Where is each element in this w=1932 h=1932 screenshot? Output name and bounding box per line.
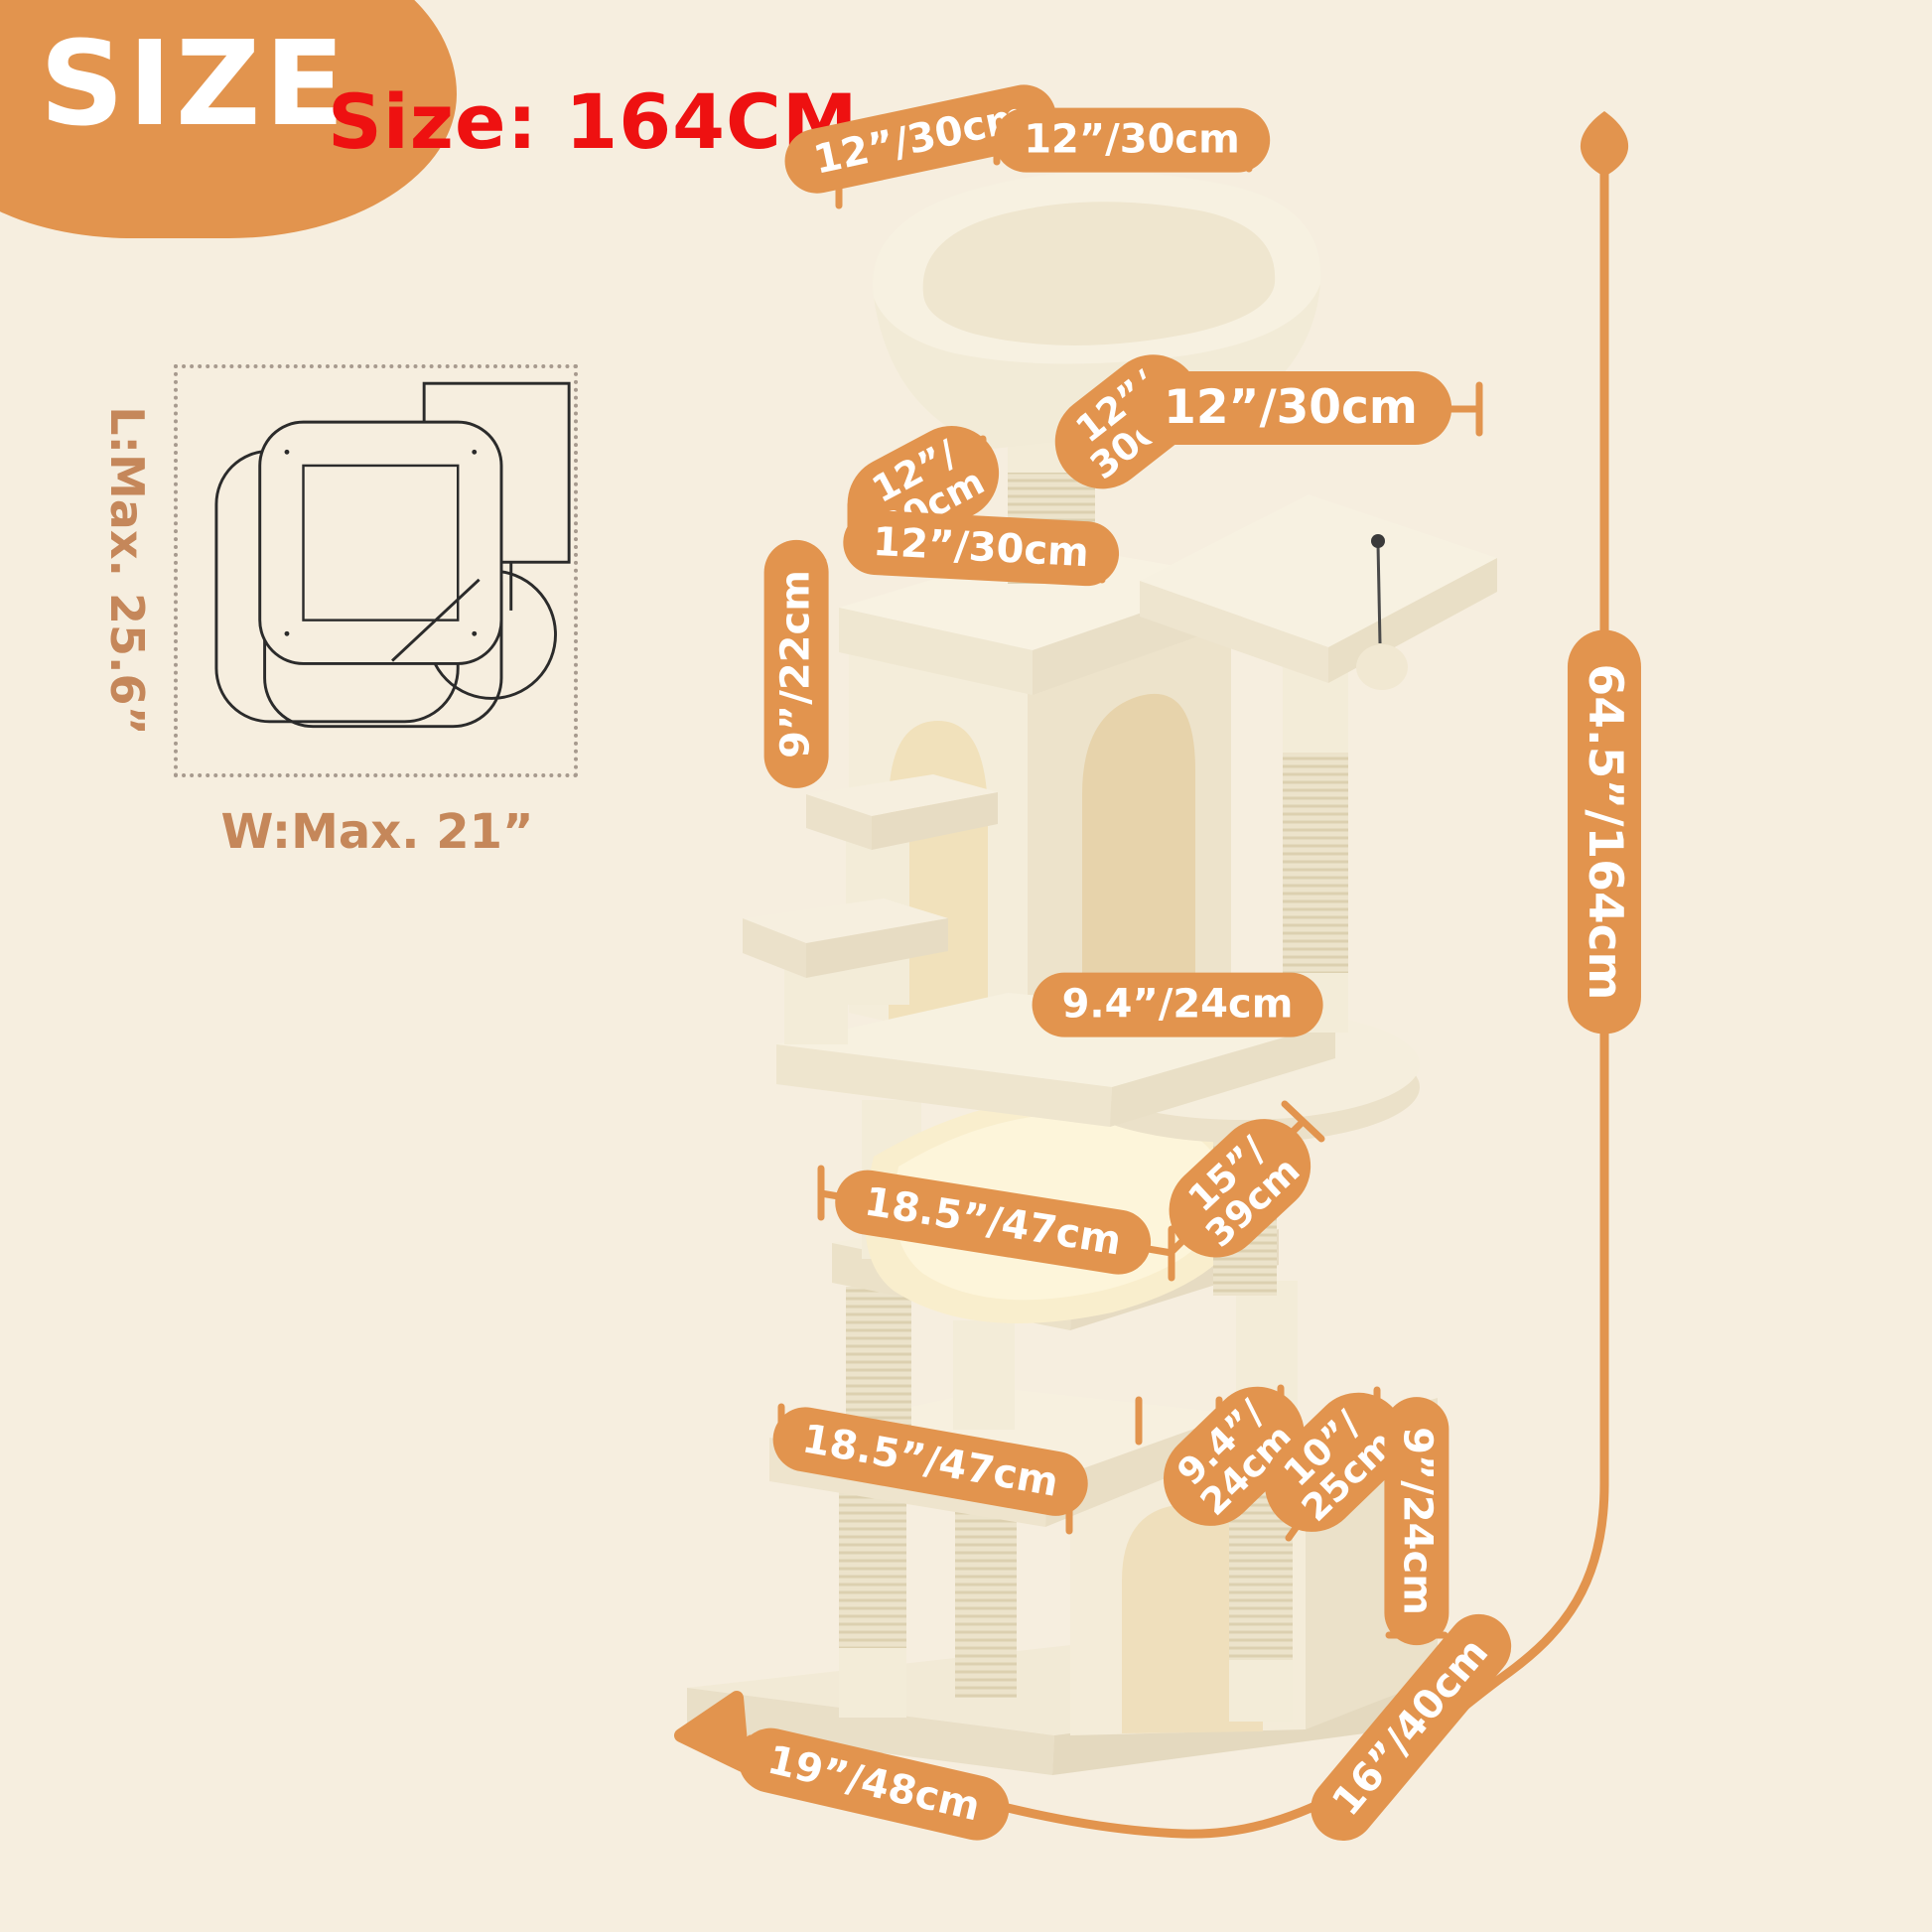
size-infographic: SIZE Size: 164CM L:Max. 25.6” W:Max. 21”…	[0, 0, 1932, 1932]
footprint-outline	[178, 368, 574, 773]
dimension-lines	[0, 0, 1932, 1932]
footprint-diagram	[174, 364, 578, 777]
footprint-length-label: L:Max. 25.6”	[100, 406, 154, 735]
footprint-width-label: W:Max. 21”	[220, 804, 533, 860]
dim-round-platform-width: 9.4”/24cm	[1033, 973, 1323, 1037]
arrow-left-icon	[681, 1698, 743, 1765]
dim-total-height: 64.5”/164cm	[1568, 630, 1641, 1035]
dim-condo-height: 9”/22cm	[764, 540, 829, 788]
size-heading: Size: 164CM	[328, 77, 858, 166]
dim-top-perch-width: 12”/30cm	[994, 108, 1270, 173]
dim-side-platform-width: 12”/30cm	[1130, 371, 1451, 445]
dim-house-height: 9”/24cm	[1385, 1397, 1449, 1645]
size-badge-label: SIZE	[40, 15, 348, 152]
arrow-up-icon	[1581, 111, 1628, 177]
